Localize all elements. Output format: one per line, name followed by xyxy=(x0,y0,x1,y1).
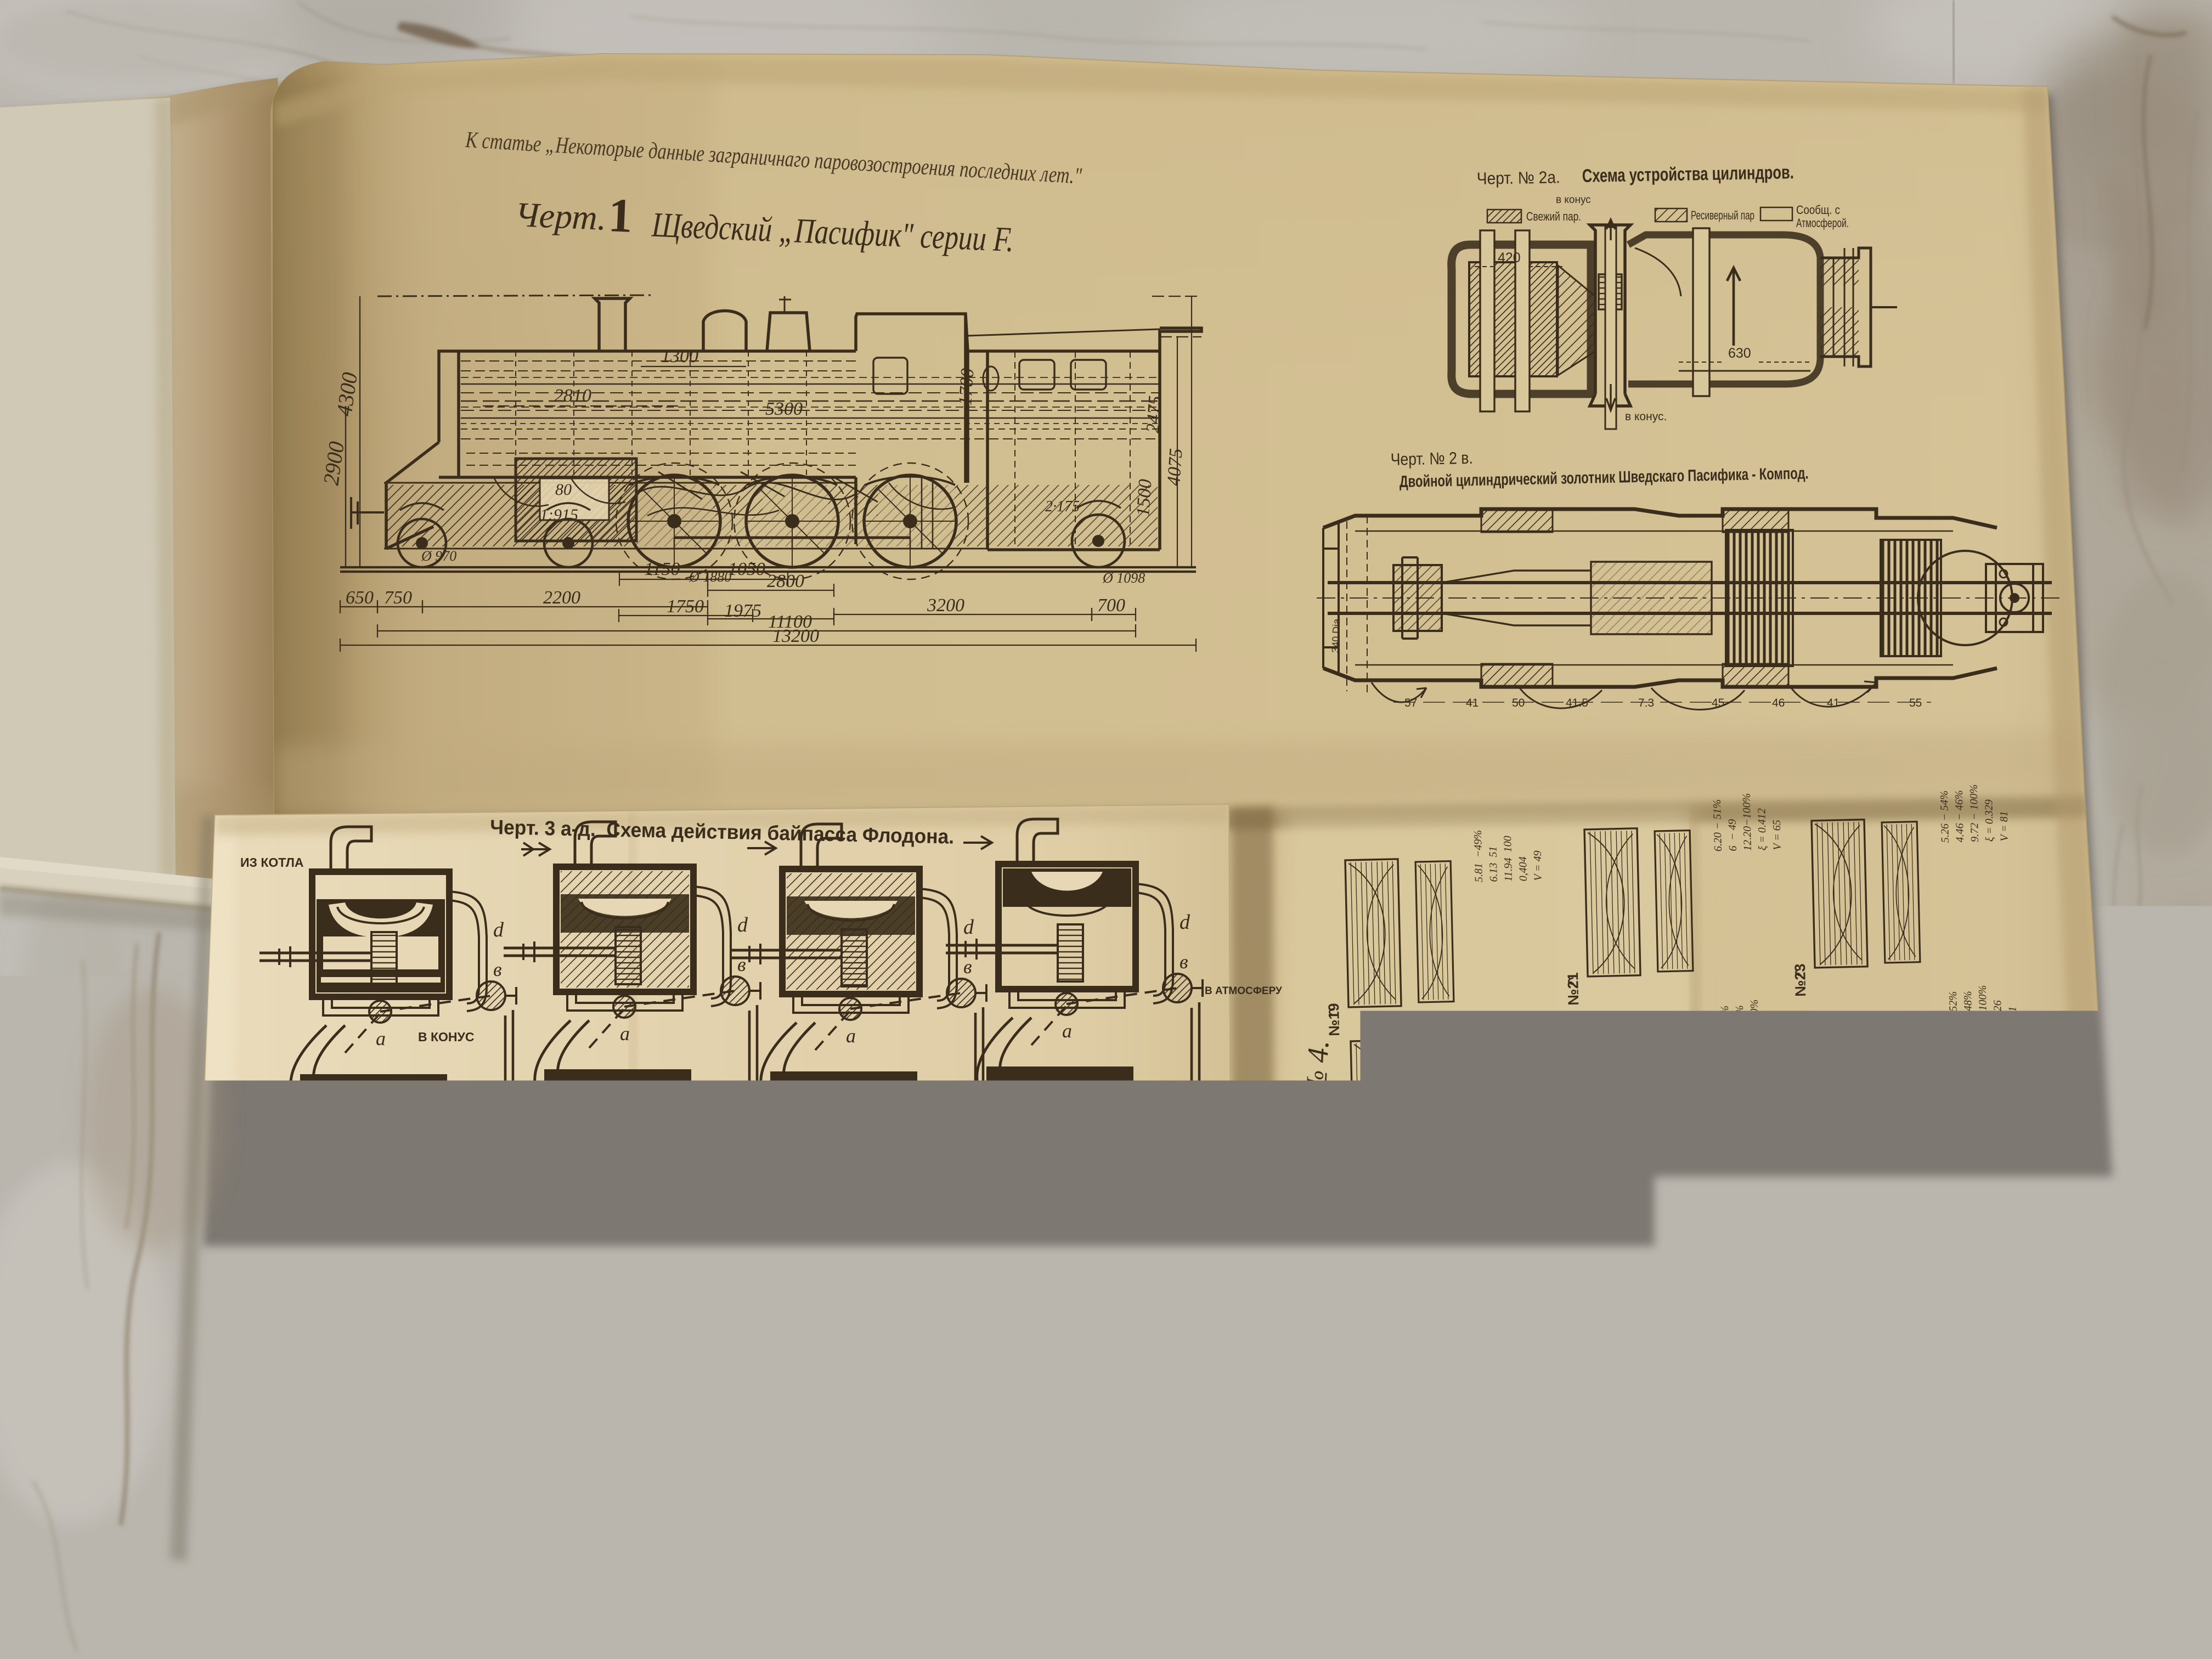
svg-text:13200: 13200 xyxy=(772,626,819,646)
svg-text:420: 420 xyxy=(1498,250,1521,266)
svg-text:Черт. № 2а.: Черт. № 2а. xyxy=(1477,167,1561,188)
svg-text:d: d xyxy=(1180,911,1190,934)
svg-text:700: 700 xyxy=(1097,595,1125,616)
svg-text:ξ = 0.226: ξ = 0.226 xyxy=(1991,1000,2005,1043)
svg-text:1: 1 xyxy=(607,189,634,243)
svg-text:d: d xyxy=(493,918,504,941)
svg-text:ξ = 0.329: ξ = 0.329 xyxy=(1983,799,1996,842)
svg-text:БОЛЬШИМИ ЦИЛИНДР.: БОЛЬШИМИ ЦИЛИНДР. xyxy=(554,1343,734,1363)
svg-text:5.60 47: 5.60 47 xyxy=(1493,1026,1505,1063)
svg-text:V = 49: V = 49 xyxy=(1537,1031,1550,1062)
svg-text:В КОНУС: В КОНУС xyxy=(418,1030,474,1044)
svg-text:в: в xyxy=(1180,951,1188,973)
svg-text:V = 101: V = 101 xyxy=(2006,1006,2019,1042)
svg-text:Черт. № 2 в.: Черт. № 2 в. xyxy=(1390,448,1473,469)
svg-text:Ø 1880: Ø 1880 xyxy=(689,569,731,585)
svg-text:5300: 5300 xyxy=(765,399,803,419)
svg-text:Ø 1098: Ø 1098 xyxy=(1102,570,1145,586)
svg-text:41: 41 xyxy=(1466,697,1479,709)
svg-text:e: e xyxy=(1207,1152,1217,1176)
svg-text:Схема устройства цилиндров.: Схема устройства цилиндров. xyxy=(1582,162,1794,187)
svg-text:6.13 51: 6.13 51 xyxy=(1487,846,1500,882)
svg-text:Pi = 4.35 = 46%: Pi = 4.35 = 46% xyxy=(1486,1175,1499,1250)
svg-text:7.63 = 100%: 7.63 = 100% xyxy=(1501,1192,1514,1250)
svg-text:№21: №21 xyxy=(1565,972,1582,1006)
svg-text:№23: №23 xyxy=(1792,963,1809,997)
svg-text:46: 46 xyxy=(1772,697,1785,709)
svg-text:3.03 − 49%: 3.03 − 49% xyxy=(1953,1183,1966,1237)
svg-text:Свежий пар.: Свежий пар. xyxy=(1526,210,1581,223)
svg-text:4.63 − 49%: 4.63 − 49% xyxy=(1734,1005,1747,1058)
svg-text:0,403: 0,403 xyxy=(1522,1037,1535,1062)
svg-text:41: 41 xyxy=(1827,697,1839,709)
svg-text:— РАБОТА КОМПОУНД.: — РАБОТА КОМПОУНД. xyxy=(772,1308,955,1328)
svg-text:3.21 − 51%: 3.21 − 51% xyxy=(1967,1183,1980,1236)
svg-text:4.04 − 51%: 4.04 − 51% xyxy=(1722,1192,1735,1245)
svg-text:№10: №10 xyxy=(1331,1184,1348,1217)
svg-text:ВСЕМИ ЦИЛИНДРАМИ.: ВСЕМИ ЦИЛИНДРАМИ. xyxy=(772,1330,950,1350)
svg-text:2475: 2475 xyxy=(1143,395,1166,433)
svg-text:с: с xyxy=(278,1251,287,1273)
svg-text:с: с xyxy=(522,1246,531,1268)
svg-text:0,404: 0,404 xyxy=(1517,856,1530,881)
svg-text:СВЕЖИЙ ПАР ИЗ КОТЛА.: СВЕЖИЙ ПАР ИЗ КОТЛА. xyxy=(571,1398,759,1414)
svg-text:ξ = 0.211: ξ = 0.211 xyxy=(1997,1193,2010,1234)
svg-text:СООБЩЕНИЕ С АТМОСФЕРОЙ.: СООБЩЕНИЕ С АТМОСФЕРОЙ. xyxy=(973,1374,1209,1390)
svg-text:1500: 1500 xyxy=(1133,478,1156,517)
svg-text:11.91 100: 11.91 100 xyxy=(1507,1017,1520,1063)
svg-text:3200: 3200 xyxy=(927,595,964,616)
svg-text:ξ = 0.316: ξ = 0.316 xyxy=(1763,1014,1776,1057)
svg-text:в: в xyxy=(493,958,502,980)
svg-text:V = 65: V = 65 xyxy=(1779,1026,1791,1057)
svg-text:а: а xyxy=(376,1028,386,1049)
svg-text:Сообщ. с: Сообщ. с xyxy=(1796,203,1840,217)
svg-text:ПОЛОЖЕНИЕ ПРИ: ПОЛОЖЕНИЕ ПРИ xyxy=(300,1324,440,1342)
svg-text:6.20 − 51%: 6.20 − 51% xyxy=(1711,799,1724,852)
svg-text:4.74 − 51%: 4.74 − 51% xyxy=(1719,1006,1732,1058)
svg-text:9.72 − 100%: 9.72 − 100% xyxy=(1968,785,1981,843)
svg-text:ПРЯМОТОК — РАБОТА: ПРЯМОТОК — РАБОТА xyxy=(1018,1275,1195,1295)
svg-text:5.81 −49%: 5.81 −49% xyxy=(1472,830,1485,883)
svg-text:а: а xyxy=(846,1025,856,1047)
svg-text:в: в xyxy=(963,956,972,978)
svg-text:d: d xyxy=(737,913,748,936)
svg-text:Условн. обозначения:: Условн. обозначения: xyxy=(337,1419,545,1448)
svg-text:= 0.325: = 0.325 xyxy=(1516,1214,1529,1249)
svg-text:а: а xyxy=(620,1023,630,1045)
svg-text:д): д) xyxy=(986,1273,1007,1300)
svg-text:V = 98: V = 98 xyxy=(2012,1204,2025,1234)
svg-text:45: 45 xyxy=(1712,697,1724,709)
svg-text:e: e xyxy=(521,1159,531,1184)
svg-text:1150: 1150 xyxy=(644,559,680,579)
svg-text:7.84 − 100%: 7.84 − 100% xyxy=(1752,1186,1765,1244)
svg-text:V = 65: V = 65 xyxy=(1782,1212,1795,1243)
svg-text:а: а xyxy=(1062,1020,1072,1042)
svg-text:с): с) xyxy=(742,1285,761,1313)
svg-text:41.5: 41.5 xyxy=(1566,697,1588,709)
svg-text:6 − 49: 6 − 49 xyxy=(1726,819,1739,851)
svg-text:Ø 970: Ø 970 xyxy=(421,548,456,564)
svg-text:6.69 − 100%: 6.69 − 100% xyxy=(1977,985,1990,1043)
svg-text:№19: №19 xyxy=(1325,1003,1342,1036)
svg-text:V = 49: V = 49 xyxy=(1532,850,1544,881)
svg-text:1700: 1700 xyxy=(955,368,978,406)
svg-text:в конус.: в конус. xyxy=(1625,410,1667,423)
svg-text:2·175: 2·175 xyxy=(1045,498,1080,515)
svg-text:ξ = 0.265: ξ = 0.265 xyxy=(1767,1201,1780,1244)
svg-text:4.46 − 46%: 4.46 − 46% xyxy=(1953,790,1966,843)
svg-text:4075: 4075 xyxy=(1164,448,1187,486)
svg-text:340 Dia: 340 Dia xyxy=(1330,618,1342,653)
svg-text:7.3: 7.3 xyxy=(1638,697,1654,709)
svg-text:630: 630 xyxy=(1728,346,1751,361)
svg-text:2800: 2800 xyxy=(767,571,804,591)
svg-text:№12: №12 xyxy=(1572,1178,1589,1212)
svg-text:ИЗ КОТЛА: ИЗ КОТЛА xyxy=(240,855,303,870)
svg-text:Черт.: Черт. xyxy=(514,195,607,238)
svg-text:6.31 −53: 6.31 −53 xyxy=(1477,1020,1491,1063)
svg-text:11.94 100: 11.94 100 xyxy=(1502,836,1515,882)
svg-text:3.48 − 52%: 3.48 − 52% xyxy=(1947,991,1960,1045)
svg-text:с: с xyxy=(964,1243,973,1265)
svg-text:2810: 2810 xyxy=(554,386,591,406)
svg-text:5.26 − 54%: 5.26 − 54% xyxy=(1938,791,1951,843)
svg-text:1050: 1050 xyxy=(728,559,765,579)
svg-text:V = 44: V = 44 xyxy=(1531,1218,1544,1249)
svg-text:РЕСИВЕРНЫЙ ПАР.: РЕСИВЕРНЫЙ ПАР. xyxy=(810,1377,958,1393)
svg-text:80: 80 xyxy=(555,481,572,499)
svg-text:ξ = 0.412: ξ = 0.412 xyxy=(1756,808,1769,851)
svg-text:1750: 1750 xyxy=(667,596,704,617)
svg-text:Ресиверный пар: Ресиверный пар xyxy=(1691,208,1754,222)
svg-text:2200: 2200 xyxy=(543,588,580,608)
svg-text:ТРОГАНИЕ С МЕСТА: ТРОГАНИЕ С МЕСТА xyxy=(561,1300,720,1319)
svg-text:3.80 − 49%: 3.80 − 49% xyxy=(1737,1192,1750,1245)
svg-text:55: 55 xyxy=(1909,697,1922,709)
svg-text:57: 57 xyxy=(1404,697,1417,709)
svg-text:50: 50 xyxy=(1512,697,1525,709)
svg-text:V = 65: V = 65 xyxy=(1771,820,1784,850)
svg-text:— РАБОТА ТОЛЬКО: — РАБОТА ТОЛЬКО xyxy=(560,1322,713,1341)
svg-text:d: d xyxy=(963,916,974,939)
svg-text:с: с xyxy=(748,1248,757,1270)
svg-text:V = 81: V = 81 xyxy=(1998,811,2011,842)
svg-text:3.21 − 48%: 3.21 − 48% xyxy=(1962,991,1975,1044)
svg-text:650: 650 xyxy=(346,588,374,608)
svg-text:В АТМОСФЕРУ: В АТМОСФЕРУ xyxy=(1205,985,1282,997)
svg-text:12.20−100%: 12.20−100% xyxy=(1741,793,1754,851)
svg-text:9.37 − 100%: 9.37 − 100% xyxy=(1748,1000,1762,1058)
svg-text:750: 750 xyxy=(384,588,412,608)
svg-text:№17: №17 xyxy=(1801,1164,1818,1198)
svg-text:1975: 1975 xyxy=(724,601,761,621)
svg-text:6.24 − 100%: 6.24 − 100% xyxy=(1982,1177,1995,1235)
svg-text:в): в) xyxy=(528,1298,547,1325)
svg-text:а): а) xyxy=(267,1320,287,1347)
svg-text:Атмосферой.: Атмосферой. xyxy=(1796,216,1849,230)
svg-text:1300: 1300 xyxy=(661,346,698,366)
svg-text:в конус: в конус xyxy=(1556,194,1591,206)
